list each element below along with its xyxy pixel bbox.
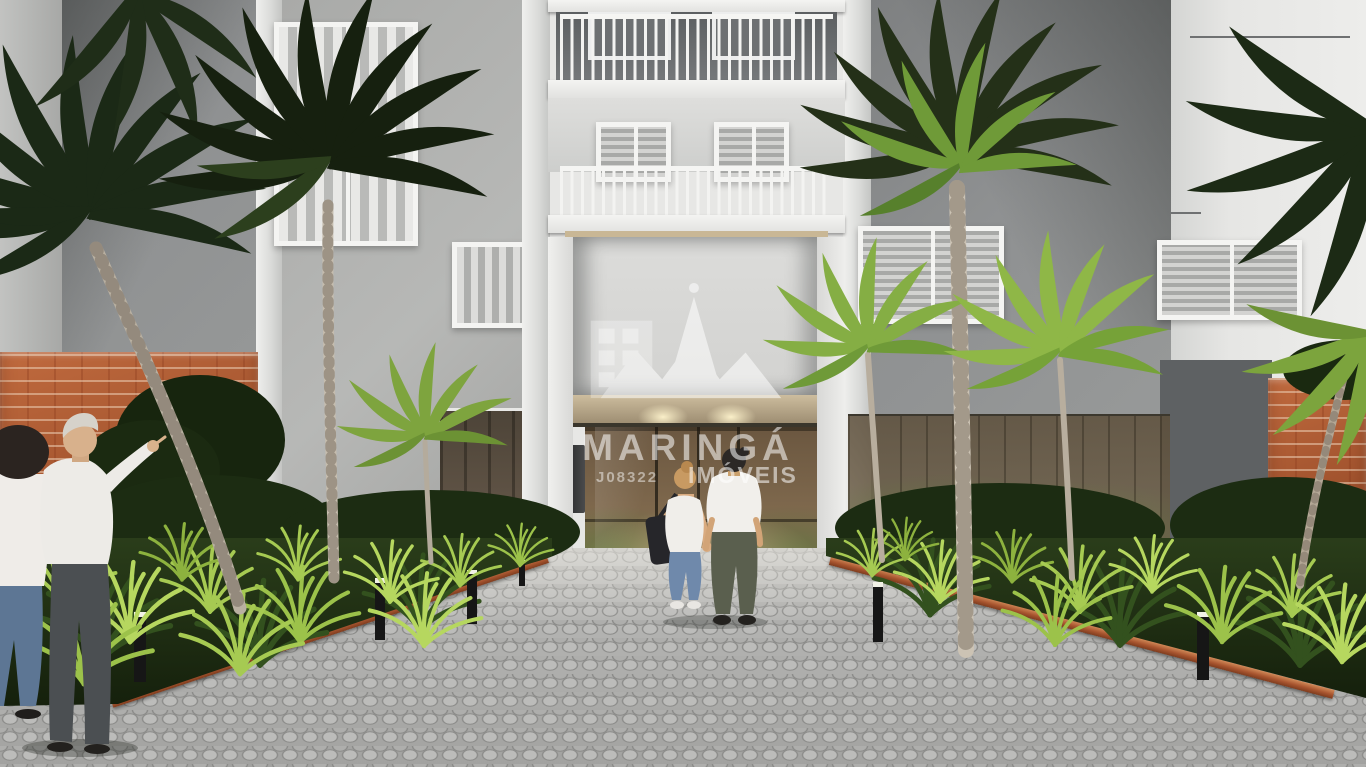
young-man	[706, 447, 762, 625]
elderly-woman	[0, 425, 49, 719]
young-woman	[645, 461, 712, 609]
elderly-man	[40, 413, 165, 754]
people-layer	[0, 0, 1366, 767]
architectural-render: MARINGÁ J08322 IMÓVEIS	[0, 0, 1366, 767]
